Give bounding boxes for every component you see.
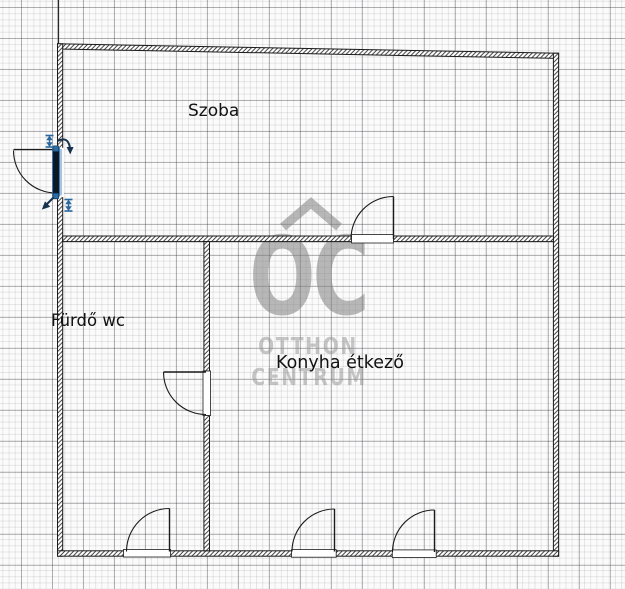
room-label-furdo-wc[interactable]: Fürdő wc [51, 311, 125, 330]
resize-handle-bottom[interactable] [53, 193, 58, 198]
entry-door-frame-highlight [60, 149, 62, 195]
floorplan-drawing [0, 0, 625, 589]
move-arrow-icon[interactable] [42, 198, 54, 210]
furdo-door[interactable] [164, 371, 211, 416]
szoba-door[interactable] [351, 197, 394, 244]
room-label-konyha-etkezo[interactable]: Konyha étkező [276, 353, 404, 373]
wall-left[interactable] [58, 44, 63, 556]
floorplan-canvas[interactable]: OC OTTHON CENTRUM [0, 0, 625, 589]
wall-right[interactable] [553, 53, 558, 556]
wall-divider-szoba-right[interactable] [394, 236, 554, 242]
room-label-szoba[interactable]: Szoba [188, 101, 239, 121]
wall-top[interactable] [58, 44, 559, 59]
wall-divider-szoba-left[interactable] [63, 236, 352, 242]
entry-door-leaf[interactable] [53, 148, 60, 196]
resize-length-icon[interactable] [65, 200, 73, 212]
konyha-bottom-door-2[interactable] [392, 510, 436, 558]
entry-door-left-selected[interactable] [14, 136, 74, 212]
konyha-bottom-door-1[interactable] [292, 509, 337, 557]
resize-length-icon[interactable] [46, 136, 54, 148]
wall-divider-furdo-lower[interactable] [204, 416, 210, 551]
wall-divider-furdo-upper[interactable] [204, 242, 210, 371]
resize-handle-top[interactable] [53, 146, 58, 151]
walls[interactable] [58, 44, 559, 556]
furdo-bottom-door[interactable] [124, 509, 171, 558]
